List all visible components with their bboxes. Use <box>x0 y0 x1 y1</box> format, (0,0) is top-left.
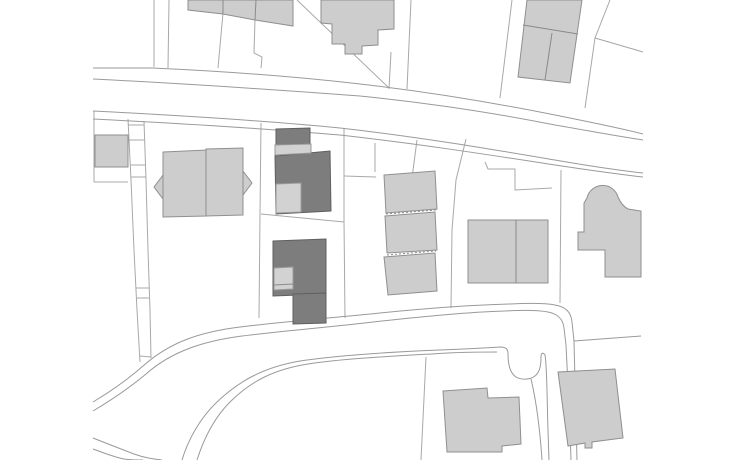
project-building-north-notch <box>276 183 301 213</box>
parcel-line-top-2 <box>168 0 169 68</box>
parcel-line-top-7 <box>500 0 512 98</box>
site-plan-viewport <box>0 0 736 460</box>
southwest-road-edge <box>93 438 162 460</box>
building-west-small <box>95 135 128 167</box>
parcel-line-top-3 <box>218 13 223 68</box>
parcel-line-house-right <box>259 123 261 318</box>
building-house-gable-right <box>243 171 252 195</box>
parcel-line-top-8 <box>585 0 610 108</box>
parcel-line-top-6 <box>407 0 411 89</box>
building-slab-1 <box>384 171 437 213</box>
east-parcel-front-line <box>574 336 641 341</box>
parcel-line-bottom-center <box>421 357 426 460</box>
building-east-keyhole <box>578 185 641 277</box>
parcel-line-top-5 <box>389 52 391 89</box>
parcel-line-top-4 <box>254 19 262 68</box>
building-bottom-center <box>443 388 521 452</box>
building-house-gable-left <box>154 175 163 199</box>
driveway-strip-tie-7 <box>140 356 151 357</box>
building-east-rect <box>468 220 548 283</box>
parcel-line-mid-tie <box>344 176 376 177</box>
building-top-stepped <box>321 0 394 54</box>
parcel-line-dark-right <box>344 128 345 318</box>
building-house-wing-left <box>163 150 207 217</box>
building-slab-3 <box>384 253 437 295</box>
parcel-line-dark-division <box>261 214 344 222</box>
building-slab-2 <box>385 212 437 253</box>
project-building-north-band <box>275 144 311 155</box>
site-plan-svg <box>0 0 736 460</box>
parcel-line-top-9-diagonal-east <box>595 38 643 52</box>
parcel-line-step-east <box>485 162 552 190</box>
driveway-strip-left <box>128 119 140 362</box>
project-building-north-top <box>276 128 310 145</box>
building-top-left-row <box>188 0 293 26</box>
project-building-south-notch <box>274 267 293 290</box>
branch-road-parcel-line-west <box>531 379 542 460</box>
parcel-line-slabs-right <box>451 139 466 308</box>
driveway-strip-right <box>144 121 151 358</box>
parcel-line-east-vertical <box>560 170 561 303</box>
building-house-wing-right <box>206 148 243 216</box>
building-bottom-right <box>558 369 623 448</box>
project-building-south-lower <box>293 293 326 324</box>
upper-road-edge-north <box>93 79 643 140</box>
building-top-right-pair <box>518 0 582 83</box>
